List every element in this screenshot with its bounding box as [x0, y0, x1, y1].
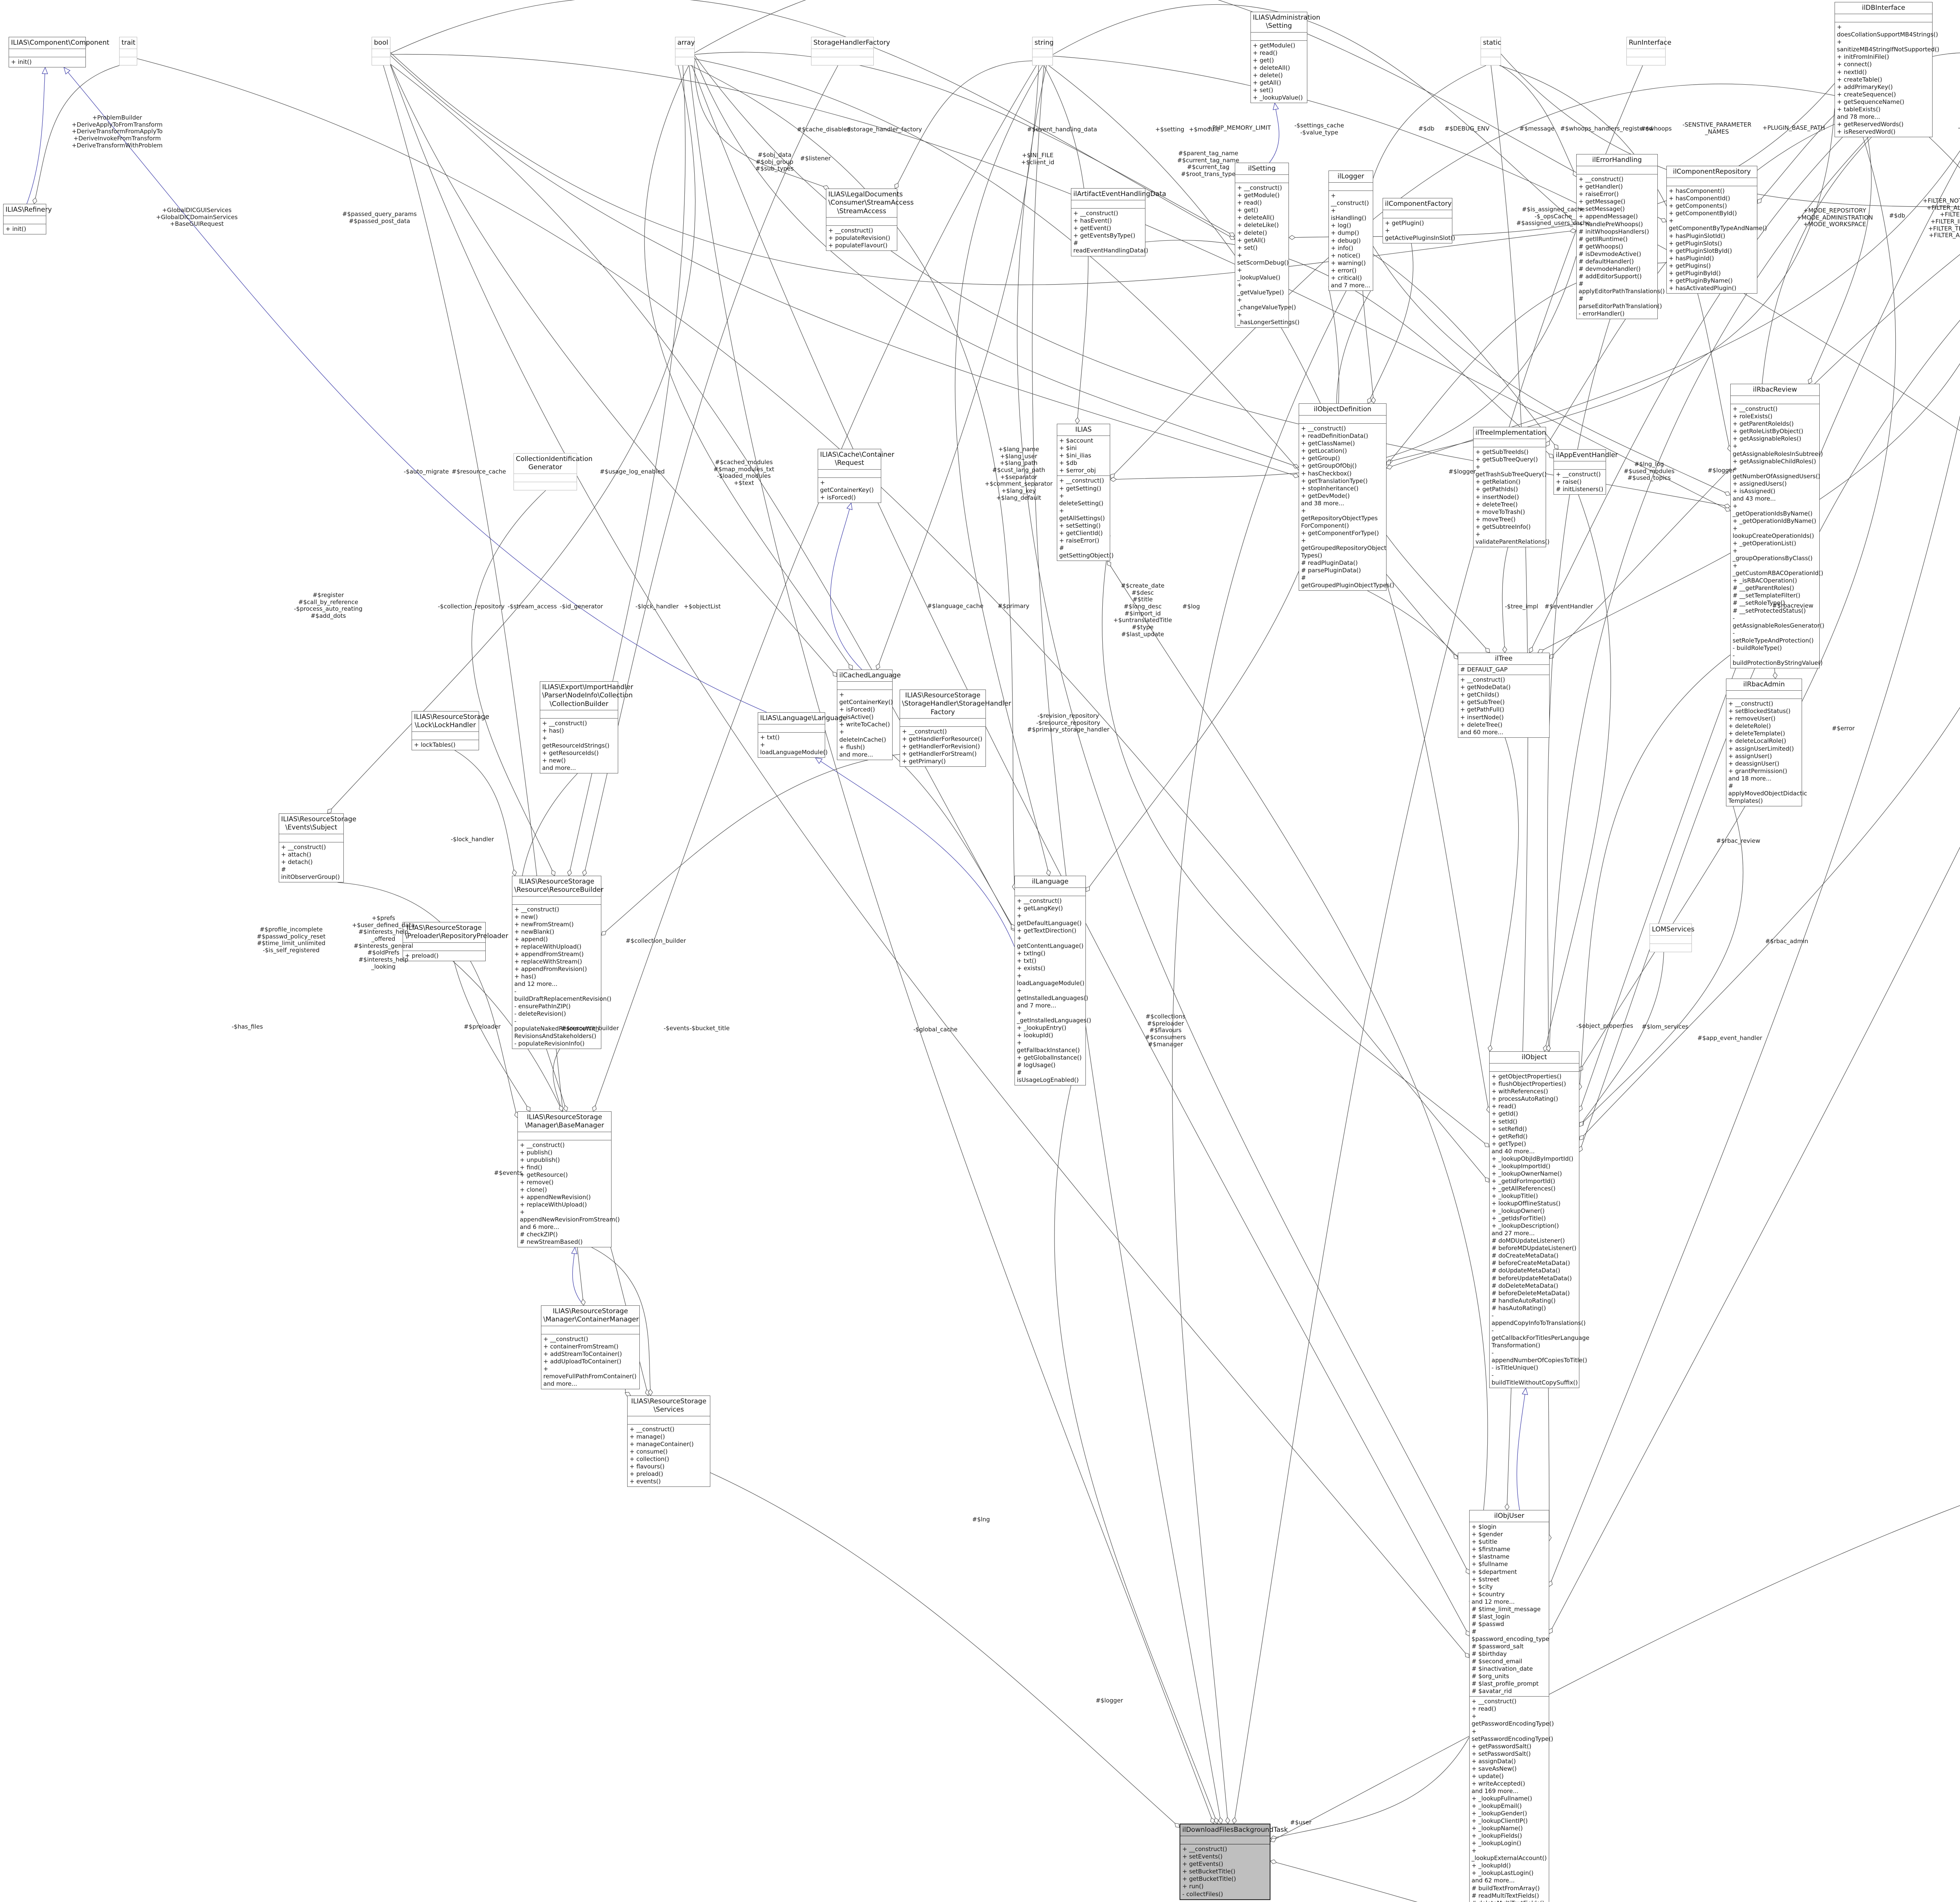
aggregation-diamond-icon — [1725, 492, 1730, 495]
class-title: ilLogger — [1329, 171, 1373, 183]
class-box-ilDBInterface[interactable]: ilDBInterface+ doesCollationSupportMB4St… — [1835, 2, 1933, 137]
edge-string-cachedLang — [879, 65, 1038, 664]
edge-label: -$object_properties — [1576, 1023, 1633, 1030]
edge-rsShf-resBuilder — [606, 754, 900, 931]
inheritance-arrow-icon — [847, 503, 852, 510]
edge-label: #$events — [494, 1170, 523, 1177]
class-attributes: + $account + $ini + $ini_ilias + $db + $… — [1057, 436, 1110, 476]
class-methods: + __construct() + roleExists() + getPare… — [1731, 404, 1819, 668]
class-box-ilLogger[interactable]: ilLogger+ __construct() + isHandling() +… — [1328, 171, 1373, 291]
class-title: ILIAS\ResourceStorage \Services — [628, 1396, 710, 1416]
aggregation-diamond-icon — [1546, 1045, 1551, 1051]
class-attributes — [540, 710, 618, 719]
class-attributes — [1474, 439, 1546, 447]
edge-label: -$id_generator — [560, 603, 603, 610]
class-methods: + getModule() + read() + get() + deleteA… — [1251, 41, 1307, 103]
class-methods — [1033, 57, 1053, 65]
class-box-subject[interactable]: ILIAS\ResourceStorage \Events\Subject+ _… — [279, 813, 344, 882]
edge-label: #$primary — [998, 603, 1029, 610]
class-box-ilias[interactable]: ILIAS+ $account + $ini + $ini_ilias + $d… — [1057, 424, 1110, 561]
class-box-runInterface[interactable]: RunInterface — [1626, 37, 1666, 65]
edge-label: #$rbac_admin — [1765, 938, 1808, 945]
edge-label: -$lock_handler — [635, 603, 679, 610]
edge-label: #$error — [1832, 725, 1855, 732]
aggregation-diamond-icon — [1107, 561, 1111, 566]
edge-label: -$bucket_title — [690, 1025, 730, 1032]
edge-label: +$objectList — [684, 603, 721, 610]
class-attributes — [1329, 183, 1373, 191]
edge-label: #$collection_builder — [626, 938, 686, 945]
edge-label: #$create_date #$desc #$title #$long_desc… — [1113, 583, 1172, 638]
aggregation-diamond-icon — [1546, 441, 1550, 446]
edge-ilDBInterface-rbacReview — [1811, 137, 1871, 378]
aggregation-diamond-icon — [33, 198, 37, 204]
class-box-errHandling[interactable]: ilErrorHandling+ __construct() + getHand… — [1576, 154, 1658, 319]
class-title: ILIAS\ResourceStorage \Lock\LockHandler — [412, 711, 479, 732]
edge-bool-errHandling — [390, 53, 1570, 285]
class-attributes — [900, 719, 985, 727]
class-box-lomServices[interactable]: LOMServices — [1650, 924, 1692, 952]
class-title: StorageHandlerFactory — [811, 37, 873, 49]
edge-treeImpl-ilTree — [1502, 547, 1508, 646]
edge-label: -$global_cache — [913, 1026, 958, 1033]
aggregation-diamond-icon — [1485, 1178, 1489, 1182]
edge-label: -$revision_repository -$resource_reposit… — [1027, 713, 1109, 733]
class-box-trait[interactable]: trait — [119, 37, 137, 65]
edge-containerMgr-baseManager — [573, 1254, 584, 1305]
edge-label: -$has_files — [232, 1024, 263, 1031]
edge-label: #$db — [1418, 125, 1434, 132]
class-title: ILIAS — [1057, 424, 1110, 436]
class-box-string[interactable]: string — [1032, 37, 1053, 65]
class-title: ilErrorHandling — [1577, 154, 1657, 166]
class-title: ilComponentFactory — [1383, 198, 1452, 210]
aggregation-diamond-icon — [1367, 397, 1371, 403]
class-attributes: + $login + $gender + $utitle + $firstnam… — [1470, 1522, 1549, 1697]
class-box-ilSetting[interactable]: ilSetting+ __construct() + getModule() +… — [1235, 163, 1289, 328]
aggregation-diamond-icon — [1465, 1653, 1469, 1658]
class-box-preloader[interactable]: ILIAS\ResourceStorage \Preloader\Reposit… — [403, 922, 486, 961]
class-methods: + doesCollationSupportMB4Strings() + san… — [1835, 22, 1932, 137]
aggregation-diamond-icon — [1661, 218, 1666, 222]
aggregation-diamond-icon — [1529, 647, 1533, 653]
class-box-bool[interactable]: bool — [372, 37, 390, 65]
edge-label: -$stream_access — [508, 603, 557, 610]
class-attributes — [518, 1132, 611, 1140]
class-title: ilAppEventHandler — [1554, 450, 1606, 461]
edge-label: #$register #$call_by_reference -$process… — [294, 592, 363, 620]
class-title: static — [1481, 37, 1501, 49]
edge-label: #$logger — [1096, 1697, 1123, 1704]
aggregation-diamond-icon — [1773, 672, 1777, 679]
aggregation-diamond-icon — [1270, 1860, 1276, 1864]
collaboration-diagram-canvas: ILIAS\Component\Component+ init()traitbo… — [0, 0, 1960, 1902]
class-box-objDef[interactable]: ilObjectDefinition+ __construct() + read… — [1299, 403, 1387, 591]
edge-label: #$resource_cache — [452, 468, 506, 475]
class-box-appEvt[interactable]: ilAppEventHandler+ __construct() + raise… — [1553, 449, 1606, 495]
class-methods: + lockTables() — [412, 740, 479, 750]
class-box-baseManager[interactable]: ILIAS\ResourceStorage \Manager\BaseManag… — [517, 1111, 612, 1247]
class-attributes: # DEFAULT_GAP — [1458, 665, 1549, 675]
class-title: ILIAS\Administration \Setting — [1251, 12, 1307, 33]
class-attributes — [9, 49, 85, 57]
edge-ilLogger-appEvt — [1373, 254, 1554, 445]
edge-label: #$usage_log_enabled — [600, 468, 665, 475]
aggregation-diamond-icon — [1554, 444, 1558, 449]
edge-array-subject — [332, 65, 695, 809]
aggregation-diamond-icon — [1225, 1817, 1230, 1824]
inheritance-arrow-icon — [42, 67, 47, 74]
class-title: ilObjUser — [1470, 1510, 1549, 1522]
class-attributes — [628, 1416, 710, 1425]
aggregation-diamond-icon — [1549, 1628, 1553, 1634]
class-box-rsServices[interactable]: ILIAS\ResourceStorage \Services+ __const… — [627, 1396, 710, 1487]
edge-label: -$events — [664, 1025, 690, 1032]
edge-bool-objDef — [390, 56, 1293, 475]
class-title: ILIAS\ResourceStorage \Manager\Container… — [541, 1306, 639, 1326]
class-methods — [1650, 944, 1691, 952]
class-box-refinery[interactable]: ILIAS\Refinery+ init() — [3, 204, 46, 234]
edge-label: #$resource_builder — [561, 1025, 619, 1032]
class-box-collBuilder[interactable]: ILIAS\Export\ImportHandler \Parser\NodeI… — [540, 681, 618, 773]
aggregation-diamond-icon — [592, 1105, 596, 1111]
edge-label: #$preloader — [464, 1024, 501, 1031]
edge-label: #$rbacreview — [1772, 603, 1813, 610]
class-box-compFactory[interactable]: ilComponentFactory+ getPlugin() + getAct… — [1383, 198, 1452, 243]
class-methods — [372, 57, 390, 65]
class-box-resBuilder[interactable]: ILIAS\ResourceStorage \Resource\Resource… — [512, 876, 601, 1049]
edge-label: #$user — [1290, 1819, 1312, 1826]
edge-label: #$rbac_review — [1716, 838, 1760, 845]
class-title: RunInterface — [1627, 37, 1665, 49]
class-attributes — [758, 724, 825, 733]
aggregation-diamond-icon — [1488, 1045, 1492, 1051]
edge-label: +PLUGIN_BASE_PATH — [1762, 125, 1825, 132]
aggregation-diamond-icon — [567, 869, 572, 876]
aggregation-diamond-icon — [1210, 1818, 1214, 1824]
class-title: ILIAS\Language\Language — [758, 713, 825, 724]
class-methods: + __construct() + setEvents() + getEvent… — [1180, 1844, 1270, 1899]
class-box-rsShf[interactable]: ILIAS\ResourceStorage \StorageHandler\St… — [900, 690, 986, 767]
edge-array-rbacReview — [695, 55, 1724, 505]
class-attributes — [1627, 49, 1665, 57]
inheritance-arrow-icon — [815, 758, 822, 764]
class-attributes — [837, 682, 892, 690]
class-title: ilObject — [1490, 1052, 1579, 1064]
class-title: ilRbacAdmin — [1726, 679, 1802, 691]
edge-cachedLang-ilLanguage — [893, 755, 1011, 924]
class-methods: + __construct() + manage() + manageConta… — [628, 1425, 710, 1486]
class-title: ilRbacReview — [1731, 384, 1819, 396]
aggregation-diamond-icon — [552, 870, 555, 876]
edge-label: #$DEBUG_ENV — [1445, 125, 1490, 132]
class-attributes — [1554, 461, 1606, 470]
class-methods — [1627, 57, 1665, 65]
edge-label: +FILTER_NOT_INTERNAL +FILTER_ALL_GLOBAL … — [1923, 198, 1960, 239]
class-title: ilDBInterface — [1835, 2, 1932, 14]
class-title: ilTree — [1458, 653, 1549, 665]
class-attributes — [818, 470, 881, 478]
class-methods: + __construct() + hasEvent() + getEvent(… — [1071, 209, 1145, 256]
class-box-component[interactable]: ILIAS\Component\Component+ init() — [9, 37, 86, 67]
class-box-treeImpl[interactable]: ilTreeImplementation+ getSubTreeIds() + … — [1473, 427, 1546, 547]
edge-label: #$log — [1182, 603, 1200, 610]
edge-ilSetting-adminSetting — [1269, 109, 1279, 163]
class-attributes — [372, 49, 390, 57]
aggregation-diamond-icon — [1486, 648, 1490, 653]
edge-label: #$cached_modules #$map_modules_txt -$loa… — [713, 459, 774, 487]
class-box-ilLanguage[interactable]: ilLanguage+ __construct() + getLangKey()… — [1014, 876, 1086, 1085]
aggregation-diamond-icon — [648, 1389, 653, 1396]
class-methods: + __construct() + attach() + detach() # … — [279, 842, 343, 882]
edge-lockHandler-resBuilder — [455, 750, 514, 869]
class-box-collIdGen[interactable]: CollectionIdentification Generator — [514, 453, 577, 490]
class-methods: + __construct() + getSetting() + deleteS… — [1057, 476, 1110, 561]
edge-ilDBInterface-ilObjUser — [1547, 137, 1868, 1535]
class-attributes — [1731, 396, 1819, 404]
edge-label: #$lng_log #$used_modules #$used_topics — [1624, 461, 1675, 482]
edge-label: -$tree_impl — [1505, 603, 1538, 610]
class-attributes — [120, 49, 137, 57]
class-attributes — [1726, 691, 1802, 699]
class-methods: + __construct() + setBlockedStatus() + r… — [1726, 699, 1802, 806]
aggregation-diamond-icon — [1214, 1818, 1218, 1824]
edge-ilObjUser-ilias — [1111, 566, 1488, 1602]
edge-label: #$parent_tag_name #$current_tag_name #$c… — [1177, 150, 1239, 178]
edge-label: -$storage_handler_factory — [845, 126, 922, 133]
edge-label: #$message — [1519, 125, 1555, 132]
edge-label: -$lock_handler — [451, 836, 494, 843]
aggregation-diamond-icon — [895, 183, 898, 189]
edge-label: #$is_assigned_cache -$_opsCache #$assign… — [1516, 206, 1590, 227]
inheritance-arrow-icon — [1273, 103, 1279, 110]
class-methods: + init() — [4, 224, 46, 234]
edge-label: #$language_cache — [927, 603, 984, 610]
edge-compFactory-objDef — [1371, 243, 1413, 398]
class-attributes — [826, 218, 897, 226]
aggregation-diamond-icon — [1175, 1823, 1180, 1828]
class-title: ilDownloadFilesBackgroundTask — [1180, 1824, 1270, 1836]
class-title: ILIAS\Cache\Container \Request — [818, 449, 881, 470]
edge-label: +ProblemBuilder +DeriveApplyToFromTransf… — [72, 114, 163, 149]
aggregation-diamond-icon — [1387, 465, 1392, 469]
aggregation-diamond-icon — [1485, 1143, 1489, 1147]
edge-array-compRepo — [695, 0, 1661, 219]
class-methods: + txt() + loadLanguageModule() — [758, 733, 825, 757]
aggregation-diamond-icon — [601, 931, 606, 935]
edge-label: #$lom_services — [1642, 1024, 1688, 1031]
edge-label: #$db — [1889, 212, 1905, 220]
edge-array-ilObjUser — [692, 65, 1466, 1630]
edge-lomServices-ilObject — [1583, 952, 1664, 1122]
edge-label: #$logger — [1708, 467, 1735, 474]
class-title: ilComponentRepository — [1667, 166, 1757, 178]
edge-bool-ilObjUser — [390, 65, 1465, 1653]
class-title: ILIAS\ResourceStorage \Resource\Resource… — [512, 876, 601, 897]
class-methods: + __construct() + read() + getPasswordEn… — [1470, 1697, 1549, 1902]
aggregation-diamond-icon — [581, 1299, 585, 1305]
class-box-ilTree[interactable]: ilTree# DEFAULT_GAP+ __construct() + get… — [1458, 653, 1550, 738]
class-box-streamAccess[interactable]: ILIAS\LegalDocuments \Consumer\StreamAcc… — [826, 189, 897, 251]
edge-bool-ilLanguage — [390, 64, 1011, 926]
edge-label: #$collections #$preloader #$flavours #$c… — [1145, 1013, 1186, 1048]
aggregation-diamond-icon — [1371, 397, 1376, 403]
class-methods: + getSubTreeIds() + getSubTreeQuery() + … — [1474, 447, 1546, 547]
aggregation-diamond-icon — [512, 869, 517, 876]
class-title: trait — [120, 37, 137, 49]
class-title: LOMServices — [1650, 924, 1691, 936]
edge-label: +MODE_REPOSITORY +MODE_ADMINISTRATION +M… — [1797, 207, 1873, 228]
class-box-langNS[interactable]: ILIAS\Language\Language+ txt() + loadLan… — [758, 712, 825, 758]
class-methods: + __construct() + readDefinitionData() +… — [1299, 424, 1386, 590]
class-title: ILIAS\Export\ImportHandler \Parser\NodeI… — [540, 682, 618, 710]
class-attributes — [403, 943, 485, 951]
class-attributes — [1299, 416, 1386, 424]
class-attributes — [811, 49, 873, 57]
class-box-artifactEvt[interactable]: ilArtifactEventHandlingData+ __construct… — [1071, 188, 1145, 256]
edge-label: +PHP_MEMORY_LIMIT — [1207, 125, 1271, 132]
class-methods: + __construct() + getModule() + read() +… — [1235, 183, 1289, 327]
class-title: string — [1033, 37, 1053, 49]
aggregation-diamond-icon — [849, 664, 853, 670]
edge-refinery-component — [27, 74, 45, 204]
class-attributes — [1490, 1064, 1579, 1072]
class-title: bool — [372, 37, 390, 49]
class-methods: + __construct() + getLangKey() + getDefa… — [1015, 896, 1085, 1085]
edge-rbacAdmin-ilObject — [1584, 806, 1743, 1122]
class-attributes — [1071, 200, 1145, 209]
class-title: ILIAS\Component\Component — [9, 37, 85, 49]
class-methods: + getObjectProperties() + flushObjectPro… — [1490, 1072, 1579, 1388]
class-attributes — [1033, 49, 1053, 57]
edge-label: #$whoops_handlers_registered — [1560, 125, 1653, 132]
edge-label: #$obj_data #$obj_group #$sub_types — [755, 152, 794, 172]
class-methods: + __construct() + publish() + unpublish(… — [518, 1140, 611, 1247]
edge-label: +$setting — [1155, 126, 1184, 133]
class-box-rbacReview[interactable]: ilRbacReview+ __construct() + roleExists… — [1730, 384, 1820, 668]
class-methods: + hasComponent() + hasComponentId() + ge… — [1667, 186, 1757, 293]
class-attributes — [1835, 14, 1932, 22]
edge-ilLanguage-langNS — [820, 761, 1014, 947]
class-box-containerMgr[interactable]: ILIAS\ResourceStorage \Manager\Container… — [541, 1305, 640, 1389]
edge-label: -$collection_repository — [438, 603, 505, 610]
edge-label: +$INI_FILE +$client_id — [1021, 152, 1054, 166]
edge-label: +$prefs +$user_defined_data #$interests_… — [352, 915, 415, 971]
aggregation-diamond-icon — [1550, 654, 1554, 659]
class-methods: + getContainerKey() + isForced() + isAct… — [837, 690, 892, 759]
inheritance-arrow-icon — [1522, 1388, 1528, 1395]
class-methods: + __construct() + getHandler() + raiseEr… — [1577, 174, 1657, 319]
class-title: array — [675, 37, 694, 49]
class-attributes — [1667, 178, 1757, 186]
edge-cachedLang-request — [831, 509, 862, 670]
class-attributes — [279, 834, 343, 842]
class-methods: + init() — [9, 57, 85, 67]
class-methods: + __construct() + populateRevision() + p… — [826, 226, 897, 250]
class-attributes — [4, 216, 46, 224]
edge-label: -$auto_migrate — [404, 468, 449, 475]
edge-label: #$app_event_handler — [1697, 1035, 1762, 1042]
class-title: ilObjectDefinition — [1299, 404, 1386, 416]
edge-label: #$lng — [972, 1516, 990, 1523]
aggregation-diamond-icon — [1293, 474, 1299, 477]
edge-label: #$eventHandler — [1544, 603, 1593, 610]
edge-taskFactory-task — [1277, 1840, 1960, 1902]
class-attributes — [541, 1326, 639, 1334]
edge-ilObjUser-ilObject — [1517, 1394, 1525, 1510]
class-title: ilLanguage — [1015, 876, 1085, 888]
class-box-ilObject[interactable]: ilObject+ getObjectProperties() + flushO… — [1489, 1051, 1579, 1388]
class-methods: + getContainerKey() + isForced() — [818, 478, 881, 503]
aggregation-diamond-icon — [1549, 454, 1553, 458]
edge-label: #$passed_query_params #$passed_post_data — [342, 211, 417, 225]
edge-label: #$profile_incomplete #$passwd_policy_res… — [257, 926, 325, 954]
aggregation-diamond-icon — [1725, 508, 1730, 512]
class-attributes — [412, 732, 479, 740]
edge-appEvt-ilObject — [1546, 495, 1611, 1045]
edge-label: +GlobalDICGUIServices +GlobalDICDomainSe… — [156, 207, 238, 228]
class-box-array[interactable]: array — [675, 37, 695, 65]
class-attributes — [1481, 49, 1501, 57]
class-methods: + preload() — [403, 951, 485, 961]
aggregation-diamond-icon — [1757, 199, 1761, 203]
edge-langNS-component — [68, 72, 767, 712]
class-box-shfTop[interactable]: StorageHandlerFactory — [811, 37, 874, 65]
edge-array-ilSetting — [695, 52, 1229, 233]
aggregation-diamond-icon — [1218, 1817, 1223, 1824]
class-box-static[interactable]: static — [1481, 37, 1501, 65]
aggregation-diamond-icon — [1289, 235, 1295, 240]
class-attributes — [1650, 936, 1691, 944]
class-attributes — [1577, 166, 1657, 174]
class-attributes — [512, 897, 601, 905]
aggregation-diamond-icon — [833, 672, 837, 677]
class-methods — [514, 482, 577, 490]
class-box-ilObjUser[interactable]: ilObjUser+ $login + $gender + $utitle + … — [1469, 1510, 1549, 1902]
aggregation-diamond-icon — [1579, 1135, 1584, 1140]
edge-static-errHandling — [1501, 65, 1574, 171]
class-title: ILIAS\ResourceStorage \Manager\BaseManag… — [518, 1112, 611, 1132]
class-attributes — [1383, 210, 1452, 218]
class-methods — [811, 57, 873, 65]
edge-label: -$dic — [1958, 125, 1960, 132]
class-box-rbacAdmin[interactable]: ilRbacAdmin+ __construct() + setBlockedS… — [1726, 679, 1802, 806]
class-methods — [1481, 57, 1501, 65]
aggregation-diamond-icon — [1075, 417, 1080, 424]
aggregation-diamond-icon — [564, 1105, 568, 1111]
class-title: CollectionIdentification Generator — [514, 454, 577, 474]
class-box-lockHandler[interactable]: ILIAS\ResourceStorage \Lock\LockHandler+… — [412, 711, 479, 750]
class-box-adminSetting[interactable]: ILIAS\Administration \Setting+ getModule… — [1250, 12, 1307, 103]
class-title: ilCachedLanguage — [837, 670, 892, 682]
aggregation-diamond-icon — [1808, 378, 1812, 384]
class-methods: + __construct() + isHandling() + log() +… — [1329, 191, 1373, 290]
class-methods: + getPlugin() + getActivePluginsInSlot() — [1383, 218, 1452, 243]
edge-runInterface-task — [1235, 65, 1642, 1817]
aggregation-diamond-icon — [1047, 869, 1051, 876]
aggregation-diamond-icon — [1232, 1817, 1236, 1824]
aggregation-diamond-icon — [1724, 504, 1730, 508]
class-box-compRepo[interactable]: ilComponentRepository+ hasComponent() + … — [1666, 166, 1757, 294]
class-box-task[interactable]: ilDownloadFilesBackgroundTask+ __constru… — [1180, 1824, 1270, 1900]
class-box-request[interactable]: ILIAS\Cache\Container \Request+ getConta… — [818, 449, 881, 503]
class-methods: + __construct() + raise() # initListener… — [1554, 470, 1606, 494]
edge-dateFormatFactory-task — [1276, 1433, 1960, 1838]
class-methods: + __construct() + containerFromStream() … — [541, 1334, 639, 1389]
aggregation-diamond-icon — [1503, 646, 1507, 653]
class-methods: + __construct() + getHandlerForResource(… — [900, 727, 985, 766]
edge-label: +$lang_name +$lang_user +$lang_path #$cu… — [985, 446, 1053, 502]
